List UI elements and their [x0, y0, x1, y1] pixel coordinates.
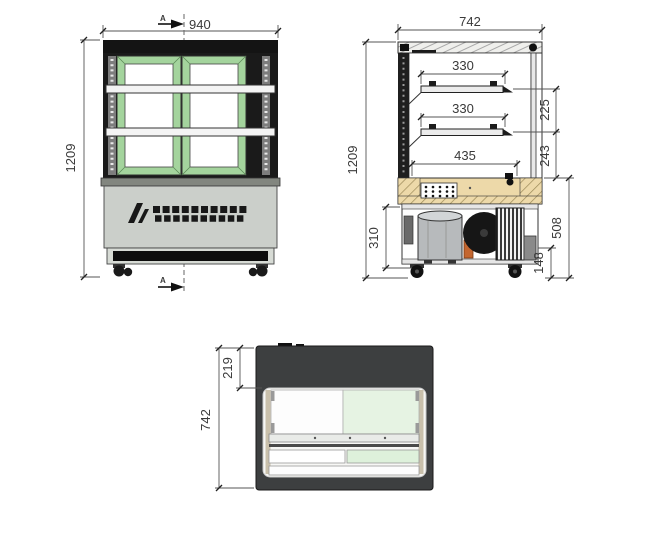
side-lower-section-label: 508	[549, 217, 564, 239]
front-vent-grille	[107, 248, 274, 264]
front-door-left-glass	[125, 64, 173, 167]
section-arrow-icon	[171, 283, 184, 292]
condenser-coil-icon	[496, 208, 524, 260]
top-glass-left	[271, 390, 343, 434]
deck-probe	[505, 173, 513, 179]
front-casters	[113, 264, 268, 277]
side-casters	[410, 264, 522, 278]
top-shelf-rail	[269, 434, 419, 447]
top-glass-right	[343, 390, 419, 434]
side-caster-label: 148	[531, 252, 546, 274]
side-shelf-upper-label: 330	[452, 58, 474, 73]
top-tray-right	[347, 450, 419, 463]
section-arrow-icon	[171, 20, 184, 29]
front-section-marker-bottom: A	[158, 276, 184, 292]
side-bay-label: 310	[366, 227, 381, 249]
side-shelf-lower-label: 330	[452, 101, 474, 116]
top-tray-left	[269, 450, 345, 463]
front-door-right	[182, 56, 246, 175]
side-base-shelf-label: 435	[454, 148, 476, 163]
front-view: 940 A	[63, 14, 281, 292]
side-back-panel	[398, 53, 409, 178]
top-opening	[263, 388, 426, 477]
section-a-label-bottom: A	[160, 276, 166, 285]
drawing-svg: 940 A	[0, 0, 669, 544]
side-machine-bay	[402, 204, 538, 264]
top-depth-label: 742	[198, 409, 213, 431]
section-a-label-top: A	[160, 14, 166, 23]
front-top-frame	[103, 40, 278, 53]
front-counter-edge	[101, 178, 280, 186]
side-view: 742	[345, 14, 574, 281]
side-shelf-counter-label: 243	[537, 145, 552, 167]
front-door-right-glass	[190, 64, 238, 167]
compressor-icon	[418, 211, 462, 264]
front-shelf-upper	[106, 85, 275, 93]
side-height-label: 1209	[345, 146, 360, 175]
front-width-label: 940	[189, 17, 211, 32]
side-top-panel	[398, 42, 542, 54]
front-door-left	[117, 56, 181, 175]
side-shelf-gap-label: 225	[537, 99, 552, 121]
top-front-band	[269, 466, 419, 475]
front-height-dimension	[80, 37, 100, 280]
front-section-marker-top: A	[158, 14, 184, 29]
side-counter-deck	[398, 173, 542, 204]
top-inset-label: 219	[220, 357, 235, 379]
top-view: 219 742	[198, 343, 433, 491]
side-width-label: 742	[459, 14, 481, 29]
technical-drawing-page: 940 A	[0, 0, 669, 544]
front-height-label: 1209	[63, 144, 78, 173]
front-shelf-lower	[106, 128, 275, 136]
bay-side-panel	[404, 216, 413, 244]
front-base-cabinet	[104, 186, 277, 248]
